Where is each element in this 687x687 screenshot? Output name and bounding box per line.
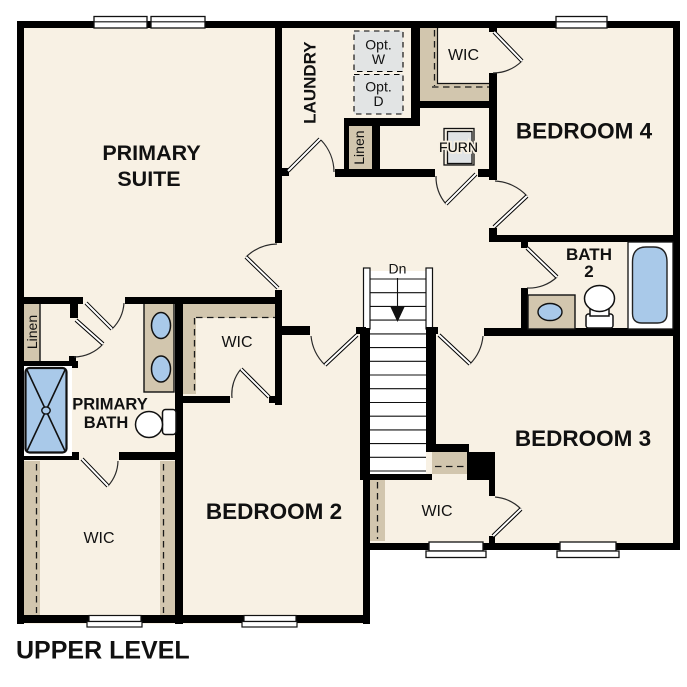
svg-text:LAUNDRY: LAUNDRY [301,41,320,124]
svg-text:SUITE: SUITE [117,167,180,191]
svg-text:Linen: Linen [351,130,367,164]
svg-text:2: 2 [584,262,593,281]
svg-text:Linen: Linen [24,315,40,349]
svg-text:WIC: WIC [448,47,479,64]
svg-text:PRIMARY: PRIMARY [72,396,147,414]
svg-text:UPPER LEVEL: UPPER LEVEL [16,637,190,665]
svg-text:WIC: WIC [421,503,452,520]
svg-text:BEDROOM 4: BEDROOM 4 [516,119,653,144]
svg-text:Dn: Dn [389,261,407,277]
svg-text:WIC: WIC [83,530,114,547]
svg-text:BEDROOM 3: BEDROOM 3 [515,426,651,451]
svg-text:W: W [372,51,386,67]
svg-text:PRIMARY: PRIMARY [102,141,200,165]
svg-text:D: D [373,93,383,109]
svg-text:WIC: WIC [221,334,252,351]
svg-text:FURN: FURN [439,139,478,155]
svg-text:BATH: BATH [84,414,129,432]
svg-text:BEDROOM 2: BEDROOM 2 [206,499,342,524]
